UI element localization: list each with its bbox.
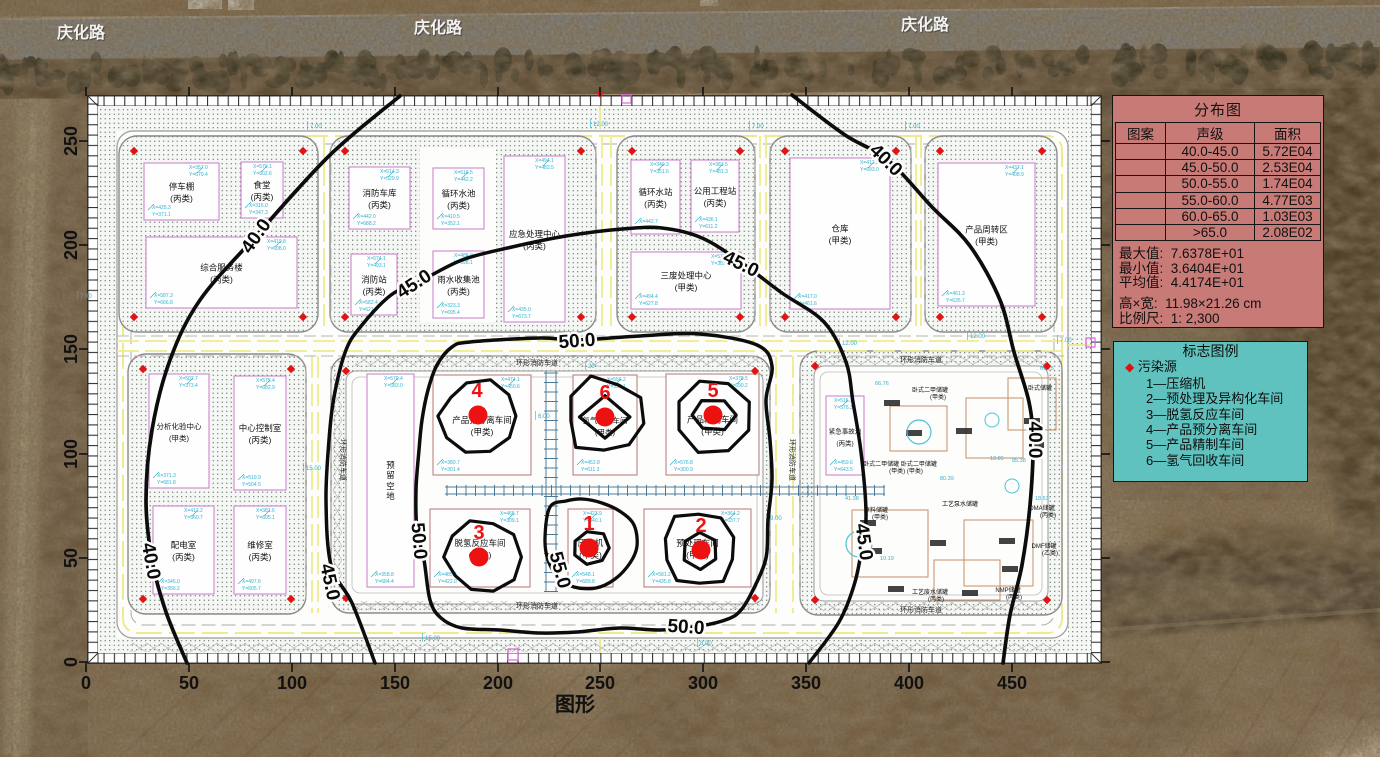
svg-text:(丙类): (丙类) (447, 287, 470, 297)
svg-text:预: 预 (386, 460, 395, 470)
svg-text:X=502.7: X=502.7 (179, 376, 198, 382)
svg-text:X=323.3: X=323.3 (441, 303, 460, 309)
svg-text:环形消防车道: 环形消防车道 (516, 601, 558, 610)
svg-text:卧式储罐: 卧式储罐 (1028, 384, 1052, 392)
svg-text:(丙类): (丙类) (249, 435, 272, 445)
svg-text:(甲类): (甲类) (169, 433, 189, 443)
svg-text:图形: 图形 (555, 693, 595, 716)
svg-text:X=494.1: X=494.1 (535, 158, 554, 164)
svg-text:X=570.4: X=570.4 (384, 376, 403, 382)
svg-text:X=579.1: X=579.1 (253, 164, 272, 170)
svg-text:循环水池: 循环水池 (441, 189, 476, 199)
svg-text:庆化路: 庆化路 (413, 18, 463, 37)
svg-text:配电室: 配电室 (171, 540, 197, 550)
svg-text:Y=684.4: Y=684.4 (375, 579, 394, 585)
svg-text:(甲类): (甲类) (975, 237, 998, 247)
svg-text:Y=371.1: Y=371.1 (152, 212, 171, 218)
svg-text:X=316.0: X=316.0 (249, 203, 268, 209)
svg-text:DMF储罐: DMF储罐 (1032, 542, 1057, 550)
svg-text:(甲类): (甲类) (930, 393, 946, 401)
svg-text:Y=504.5: Y=504.5 (242, 482, 261, 488)
svg-text:DMA储罐: DMA储罐 (1029, 504, 1054, 512)
svg-text:X=514.3: X=514.3 (380, 169, 399, 175)
svg-text:Y=695.4: Y=695.4 (441, 310, 460, 316)
svg-text:X=425.3: X=425.3 (152, 205, 171, 211)
svg-text:5: 5 (707, 380, 718, 402)
svg-text:200: 200 (61, 230, 81, 260)
svg-text:(丙类): (丙类) (368, 200, 391, 210)
svg-text:7.00: 7.00 (752, 124, 764, 130)
svg-text:留: 留 (386, 470, 395, 480)
svg-text:(丙类): (丙类) (704, 198, 727, 208)
svg-text:空: 空 (386, 481, 395, 491)
svg-text:X=452.8: X=452.8 (581, 460, 600, 466)
svg-text:20: 20 (588, 364, 595, 370)
svg-text:(丙类): (丙类) (1040, 511, 1056, 519)
svg-text:Y=483.5: Y=483.5 (535, 165, 554, 171)
svg-text:250: 250 (61, 126, 81, 156)
svg-text:Y=643.5: Y=643.5 (834, 467, 853, 473)
svg-text:7.00: 7.00 (80, 294, 92, 300)
svg-text:1: 1 (583, 513, 594, 535)
svg-text:X=436.1: X=436.1 (699, 217, 718, 223)
svg-text:(丙类): (丙类) (447, 201, 470, 211)
svg-text:维修室: 维修室 (247, 540, 273, 550)
svg-text:18.53: 18.53 (1035, 496, 1049, 502)
svg-text:Y=673.7: Y=673.7 (512, 314, 531, 320)
svg-text:3: 3 (473, 522, 484, 544)
svg-text:15.00: 15.00 (425, 636, 441, 642)
svg-text:公用工程站: 公用工程站 (694, 186, 737, 196)
svg-text:66.76: 66.76 (875, 381, 889, 387)
svg-text:Y=611.3: Y=611.3 (581, 467, 600, 473)
svg-text:Y=352.1: Y=352.1 (441, 221, 460, 227)
svg-text:庆化路: 庆化路 (900, 15, 950, 34)
svg-text:X=519.9: X=519.9 (242, 475, 261, 481)
svg-text:50.0: 50.0 (558, 330, 596, 354)
svg-text:Y=611.2: Y=611.2 (699, 224, 718, 230)
svg-text:X=581.2: X=581.2 (652, 572, 671, 578)
svg-text:Y=635.7: Y=635.7 (946, 298, 965, 304)
svg-text:Y=481.3: Y=481.3 (709, 169, 728, 175)
svg-text:X=419.8: X=419.8 (267, 239, 286, 245)
svg-text:食堂: 食堂 (253, 180, 270, 190)
svg-text:(丙类): (丙类) (170, 194, 193, 204)
svg-text:消防站: 消防站 (361, 275, 387, 285)
svg-text:环形消防车道: 环形消防车道 (339, 439, 348, 481)
svg-text:(丙类): (丙类) (251, 192, 274, 202)
svg-text:Y=309.1: Y=309.1 (500, 518, 519, 524)
svg-text:X=516.3: X=516.3 (834, 398, 853, 404)
svg-text:X=516.5: X=516.5 (454, 170, 473, 176)
svg-text:0: 0 (61, 657, 81, 667)
svg-text:Y=681.8: Y=681.8 (157, 480, 176, 486)
svg-text:X=417.0: X=417.0 (798, 294, 817, 300)
svg-text:Y=300.9: Y=300.9 (674, 467, 693, 473)
svg-text:X=346.0: X=346.0 (161, 579, 180, 585)
svg-text:100: 100 (61, 439, 81, 469)
svg-text:400: 400 (894, 673, 924, 693)
svg-text:2: 2 (695, 515, 706, 537)
svg-text:消防车库: 消防车库 (362, 188, 397, 198)
svg-text:7.00: 7.00 (310, 124, 322, 130)
svg-text:中心控制室: 中心控制室 (239, 423, 282, 433)
svg-text:X=435.0: X=435.0 (512, 307, 531, 313)
svg-text:分析化验中心: 分析化验中心 (157, 421, 202, 431)
svg-text:(甲类): (甲类) (872, 513, 888, 521)
svg-text:Y=605.7: Y=605.7 (242, 586, 261, 592)
svg-text:庆化路: 庆化路 (56, 23, 106, 42)
svg-text:50: 50 (61, 548, 81, 568)
svg-text:80.39: 80.39 (940, 476, 954, 482)
svg-text:0: 0 (81, 673, 91, 693)
svg-text:6: 6 (599, 382, 610, 404)
svg-text:Y=682.9: Y=682.9 (256, 385, 275, 391)
svg-text:150: 150 (380, 673, 410, 693)
svg-text:停车棚: 停车棚 (169, 182, 195, 192)
svg-text:Y=689.8: Y=689.8 (576, 579, 595, 585)
svg-text:(丙类): (丙类) (644, 199, 667, 209)
svg-text:地: 地 (386, 491, 395, 501)
svg-text:工艺废水储罐: 工艺废水储罐 (912, 588, 948, 596)
svg-text:产品周转区: 产品周转区 (965, 225, 1008, 235)
svg-text:X=494.4: X=494.4 (639, 294, 658, 300)
svg-text:(丙类): (丙类) (836, 439, 853, 448)
svg-text:Y=605.1: Y=605.1 (256, 515, 275, 521)
svg-text:Y=347.3: Y=347.3 (249, 210, 268, 216)
svg-text:(丙类): (丙类) (928, 595, 944, 603)
svg-text:X=364.2: X=364.2 (721, 511, 740, 517)
svg-text:Y=688.2: Y=688.2 (357, 221, 376, 227)
svg-text:50.0: 50.0 (667, 616, 705, 640)
svg-text:Y=422.0: Y=422.0 (438, 579, 457, 585)
svg-text:X=358.8: X=358.8 (375, 572, 394, 578)
svg-text:Y=608.0: Y=608.0 (267, 246, 286, 252)
svg-text:X=383.5: X=383.5 (709, 162, 728, 168)
svg-text:8.00: 8.00 (700, 641, 712, 647)
svg-text:X=442.0: X=442.0 (357, 214, 376, 220)
svg-text:环形消防车道: 环形消防车道 (788, 439, 797, 481)
svg-text:50: 50 (179, 673, 199, 693)
svg-text:Y=583.0: Y=583.0 (384, 383, 403, 389)
svg-text:12.85: 12.85 (990, 456, 1004, 462)
svg-text:X=474.1: X=474.1 (501, 377, 520, 383)
svg-text:X=380.7: X=380.7 (441, 460, 460, 466)
svg-text:85.38: 85.38 (1012, 458, 1026, 464)
svg-text:(丙类): (丙类) (249, 552, 272, 562)
svg-text:300: 300 (688, 673, 718, 693)
svg-text:(乙类): (乙类) (1042, 549, 1058, 557)
svg-text:Y=602.6: Y=602.6 (253, 171, 272, 177)
svg-text:Y=408.9: Y=408.9 (1005, 172, 1024, 178)
svg-text:X=465.7: X=465.7 (500, 511, 519, 517)
svg-text:50.0: 50.0 (406, 522, 430, 561)
svg-text:Y=493.1: Y=493.1 (367, 263, 386, 269)
svg-text:环形消防车道: 环形消防车道 (900, 355, 942, 364)
svg-text:Y=560.7: Y=560.7 (184, 515, 203, 521)
svg-text:(丙类): (丙类) (172, 552, 195, 562)
svg-text:环形消防车道: 环形消防车道 (516, 358, 558, 367)
svg-text:350: 350 (791, 673, 821, 693)
svg-text:Y=679.4: Y=679.4 (189, 172, 208, 178)
svg-text:工艺泵水储罐: 工艺泵水储罐 (942, 500, 978, 508)
svg-text:(甲类): (甲类) (471, 427, 494, 437)
svg-text:(甲类) (甲类): (甲类) (甲类) (889, 467, 923, 475)
svg-text:卧式二甲储罐: 卧式二甲储罐 (912, 386, 948, 394)
svg-text:Y=627.8: Y=627.8 (639, 301, 658, 307)
svg-text:循环水站: 循环水站 (638, 187, 673, 197)
svg-text:100: 100 (277, 673, 307, 693)
svg-text:(甲类): (甲类) (675, 283, 698, 293)
svg-text:4: 4 (471, 380, 483, 402)
svg-text:7.00: 7.00 (1060, 338, 1072, 344)
svg-text:X=576.8: X=576.8 (674, 460, 693, 466)
svg-text:X=461.3: X=461.3 (946, 291, 965, 297)
svg-text:X=412.2: X=412.2 (184, 508, 203, 514)
svg-text:Y=693.0: Y=693.0 (860, 167, 879, 173)
svg-text:7.00: 7.00 (908, 124, 920, 130)
svg-text:Y=351.6: Y=351.6 (650, 169, 669, 175)
svg-text:150: 150 (61, 334, 81, 364)
svg-text:(丙类): (丙类) (363, 287, 386, 297)
svg-text:12.00: 12.00 (842, 341, 858, 347)
svg-text:X=357.0: X=357.0 (189, 165, 208, 171)
svg-text:(甲类): (甲类) (829, 236, 852, 246)
svg-text:X=442.7: X=442.7 (639, 219, 658, 225)
svg-text:X=459.6: X=459.6 (834, 460, 853, 466)
svg-text:X=340.3: X=340.3 (650, 162, 669, 168)
svg-text:雨水收集池: 雨水收集池 (437, 275, 480, 285)
svg-text:12.00: 12.00 (970, 334, 986, 340)
svg-text:Y=301.4: Y=301.4 (441, 467, 460, 473)
svg-text:12.00: 12.00 (593, 122, 609, 128)
svg-text:250: 250 (585, 673, 615, 693)
svg-text:450: 450 (997, 673, 1027, 693)
svg-text:6.00: 6.00 (538, 414, 550, 420)
svg-text:X=381.6: X=381.6 (256, 508, 275, 514)
svg-text:X=574.1: X=574.1 (367, 256, 386, 262)
svg-text:X=582.4: X=582.4 (359, 300, 378, 306)
svg-text:10.19: 10.19 (880, 556, 894, 562)
svg-text:X=548.1: X=548.1 (576, 572, 595, 578)
svg-text:Y=442.2: Y=442.2 (454, 177, 473, 183)
svg-text:三废处理中心: 三废处理中心 (660, 271, 712, 281)
svg-text:Y=373.4: Y=373.4 (179, 383, 198, 389)
svg-text:Y=576.3: Y=576.3 (834, 405, 853, 411)
svg-text:X=575.4: X=575.4 (256, 378, 275, 384)
svg-text:卧式二甲储罐 卧式二甲储罐: 卧式二甲储罐 卧式二甲储罐 (863, 460, 937, 468)
svg-text:41.38: 41.38 (845, 496, 859, 502)
svg-text:200: 200 (483, 673, 513, 693)
svg-text:40.0: 40.0 (1024, 422, 1045, 459)
svg-text:X=378.5: X=378.5 (729, 376, 748, 382)
svg-text:X=497.6: X=497.6 (242, 579, 261, 585)
svg-text:X=410.5: X=410.5 (441, 214, 460, 220)
svg-text:环形消防车道: 环形消防车道 (900, 605, 942, 614)
svg-text:X=587.3: X=587.3 (154, 293, 173, 299)
svg-text:X=371.3: X=371.3 (157, 473, 176, 479)
svg-text:Y=529.9: Y=529.9 (380, 176, 399, 182)
svg-text:Y=666.8: Y=666.8 (154, 300, 173, 306)
svg-text:Y=435.8: Y=435.8 (652, 579, 671, 585)
svg-text:Y=356.2: Y=356.2 (161, 586, 180, 592)
svg-text:9.00: 9.00 (770, 516, 782, 522)
svg-text:仓库: 仓库 (831, 224, 849, 234)
svg-text:15.00: 15.00 (306, 466, 322, 472)
svg-text:X=437.1: X=437.1 (1005, 165, 1024, 171)
